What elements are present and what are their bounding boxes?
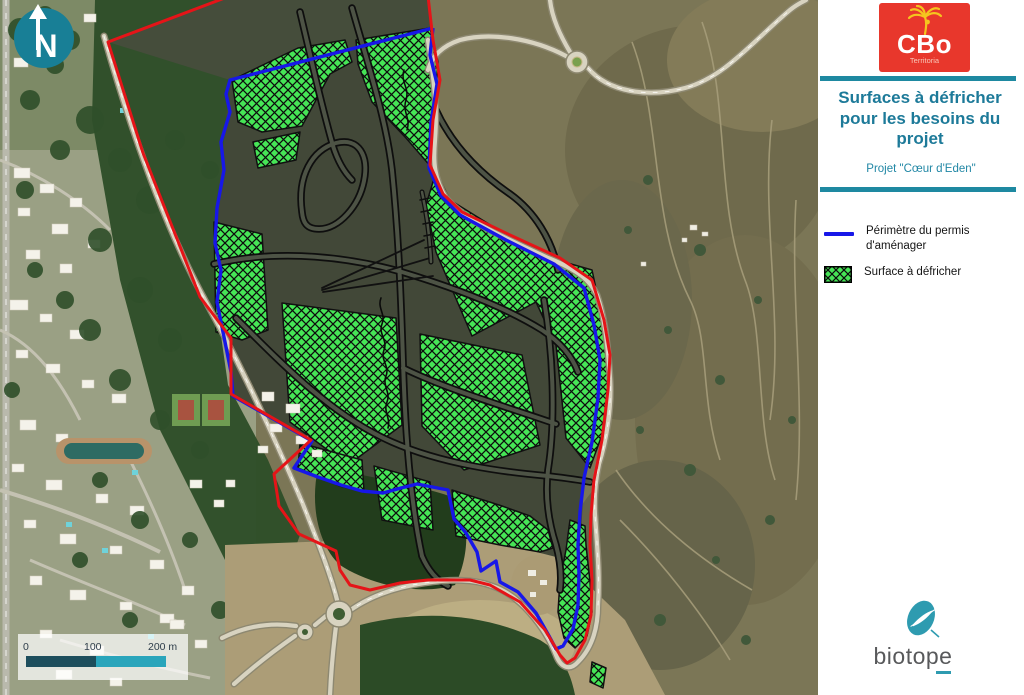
roundabout-sw-small <box>297 624 313 640</box>
legend-row-perimeter: Périmètre du permis d'aménager <box>824 224 1008 254</box>
biotope-underline <box>936 671 951 674</box>
roundabout-sw <box>326 601 352 627</box>
scale-bar: 0 100 200 m <box>18 634 188 680</box>
clearing-hatch-swatch <box>824 266 852 283</box>
map-layout-panel: CBo Territoria Surfaces à défricher pour… <box>818 0 1024 695</box>
map-canvas: N 0 100 200 m <box>0 0 818 695</box>
biotope-logo-text: biotope <box>874 643 953 670</box>
perimeter-label: Périmètre du permis d'aménager <box>866 224 1008 254</box>
biotope-leaf-icon <box>895 596 947 642</box>
legend: Périmètre du permis d'aménager Surface à… <box>824 224 1008 294</box>
scale-tick-0: 0 <box>23 641 29 653</box>
map-document: N 0 100 200 m <box>0 0 1024 695</box>
map-subtitle: Projet "Cœur d'Eden" <box>818 163 1024 175</box>
perimeter-line-swatch <box>824 232 854 236</box>
biotope-logo: biotope <box>818 596 1024 670</box>
north-label: N <box>34 28 57 64</box>
scale-tick-200: 200 m <box>148 641 177 653</box>
satellite-map: N 0 100 200 m <box>0 0 818 695</box>
cbo-logo-text: CBo <box>879 33 970 55</box>
scale-tick-100: 100 <box>84 641 102 653</box>
cbo-territoria-logo: CBo Territoria <box>879 3 970 72</box>
roundabout-ne <box>566 51 588 73</box>
clearing-label: Surface à défricher <box>864 265 1006 280</box>
legend-row-clearing: Surface à défricher <box>824 265 1008 283</box>
cbo-logo-tagline: Territoria <box>879 56 970 65</box>
divider-top <box>820 76 1016 81</box>
map-title: Surfaces à défricher pour les besoins du… <box>822 88 1018 150</box>
divider-bottom <box>820 187 1016 192</box>
